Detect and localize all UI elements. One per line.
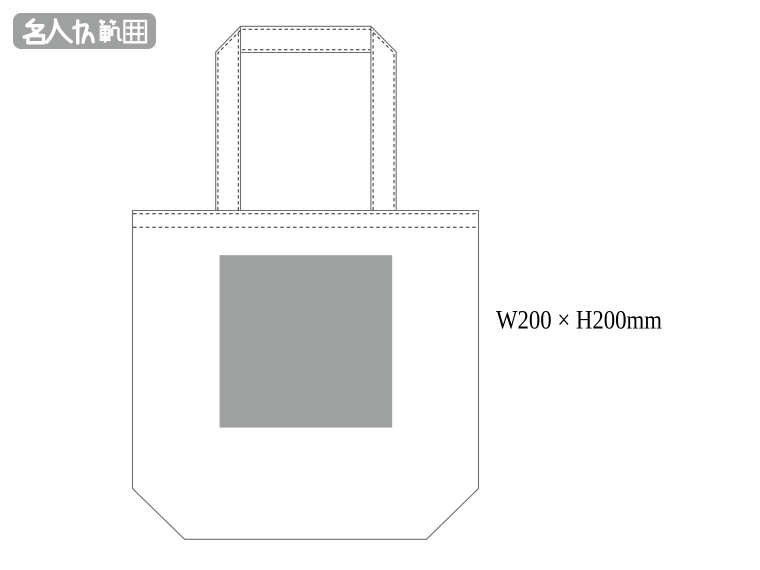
svg-text:W200 × H200mm: W200 × H200mm <box>496 305 662 335</box>
